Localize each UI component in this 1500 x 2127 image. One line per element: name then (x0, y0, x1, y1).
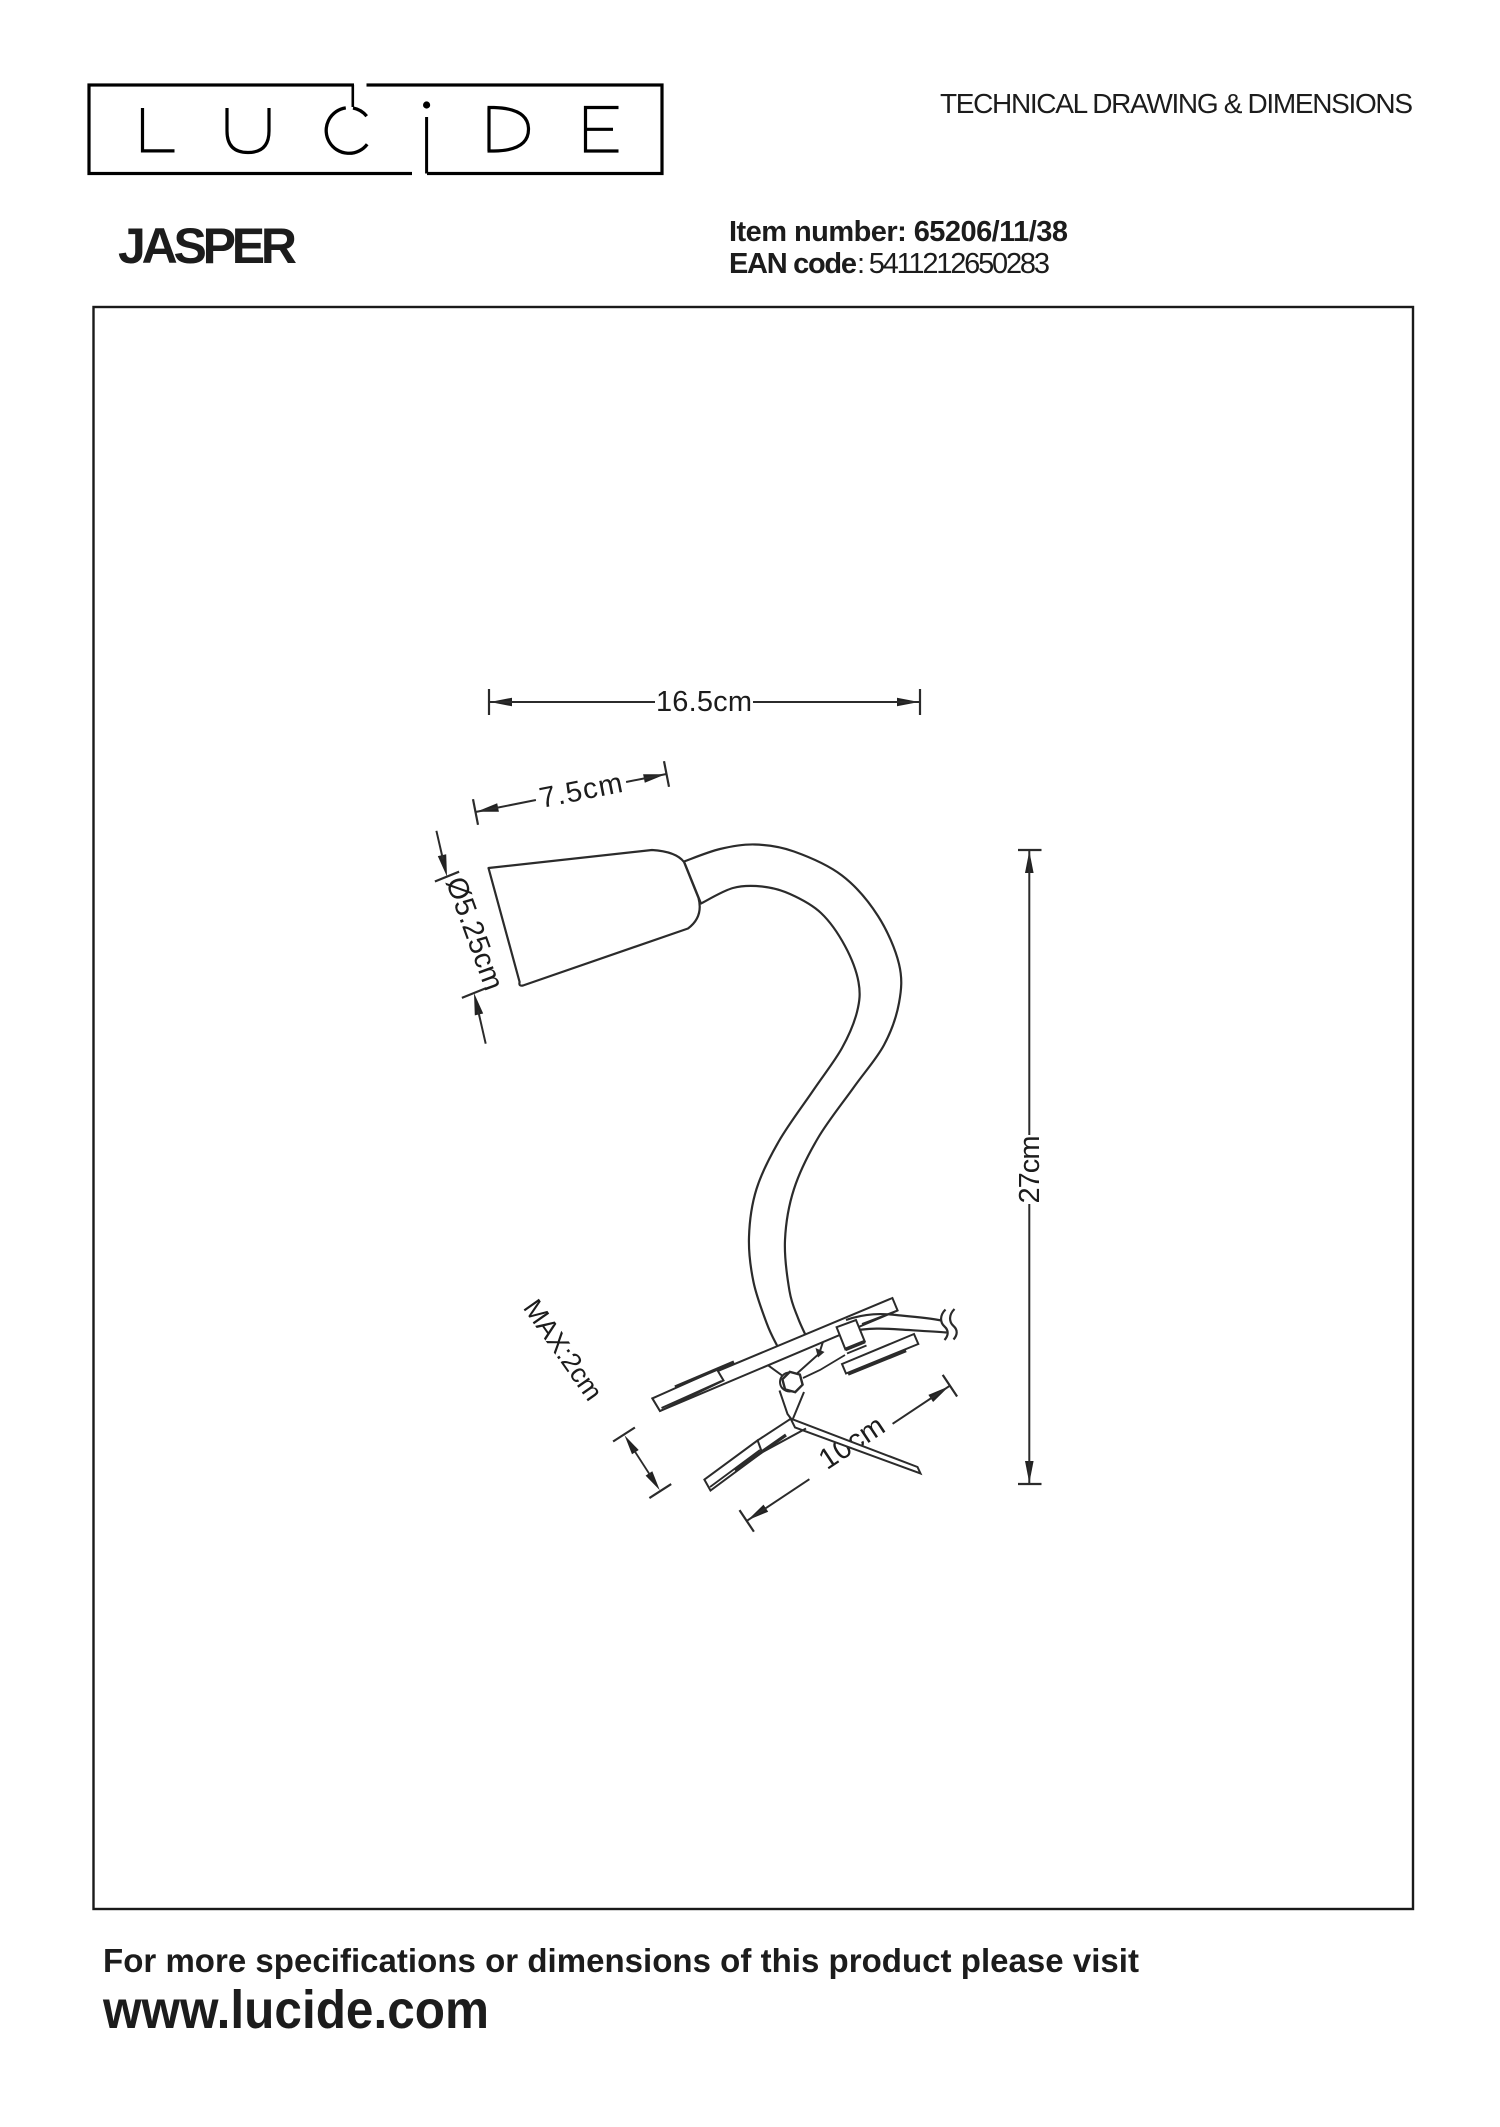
svg-text:16.5cm: 16.5cm (656, 686, 752, 718)
svg-text:EAN code: EAN code (729, 248, 857, 280)
svg-text:For more specifications or dim: For more specifications or dimensions of… (103, 1942, 1139, 1979)
svg-text:MAX:2cm: MAX:2cm (517, 1294, 608, 1406)
svg-text:27cm: 27cm (1014, 1136, 1046, 1204)
svg-text:TECHNICAL DRAWING & DIMENSIONS: TECHNICAL DRAWING & DIMENSIONS (940, 88, 1415, 119)
svg-text:: 5411212650283: : 5411212650283 (857, 248, 1050, 280)
svg-text:JASPER: JASPER (118, 218, 297, 274)
svg-text:Item number: 65206/11/38: Item number: 65206/11/38 (729, 216, 1068, 248)
svg-text:www.lucide.com: www.lucide.com (102, 1980, 489, 2040)
svg-text:7.5cm: 7.5cm (537, 767, 626, 815)
